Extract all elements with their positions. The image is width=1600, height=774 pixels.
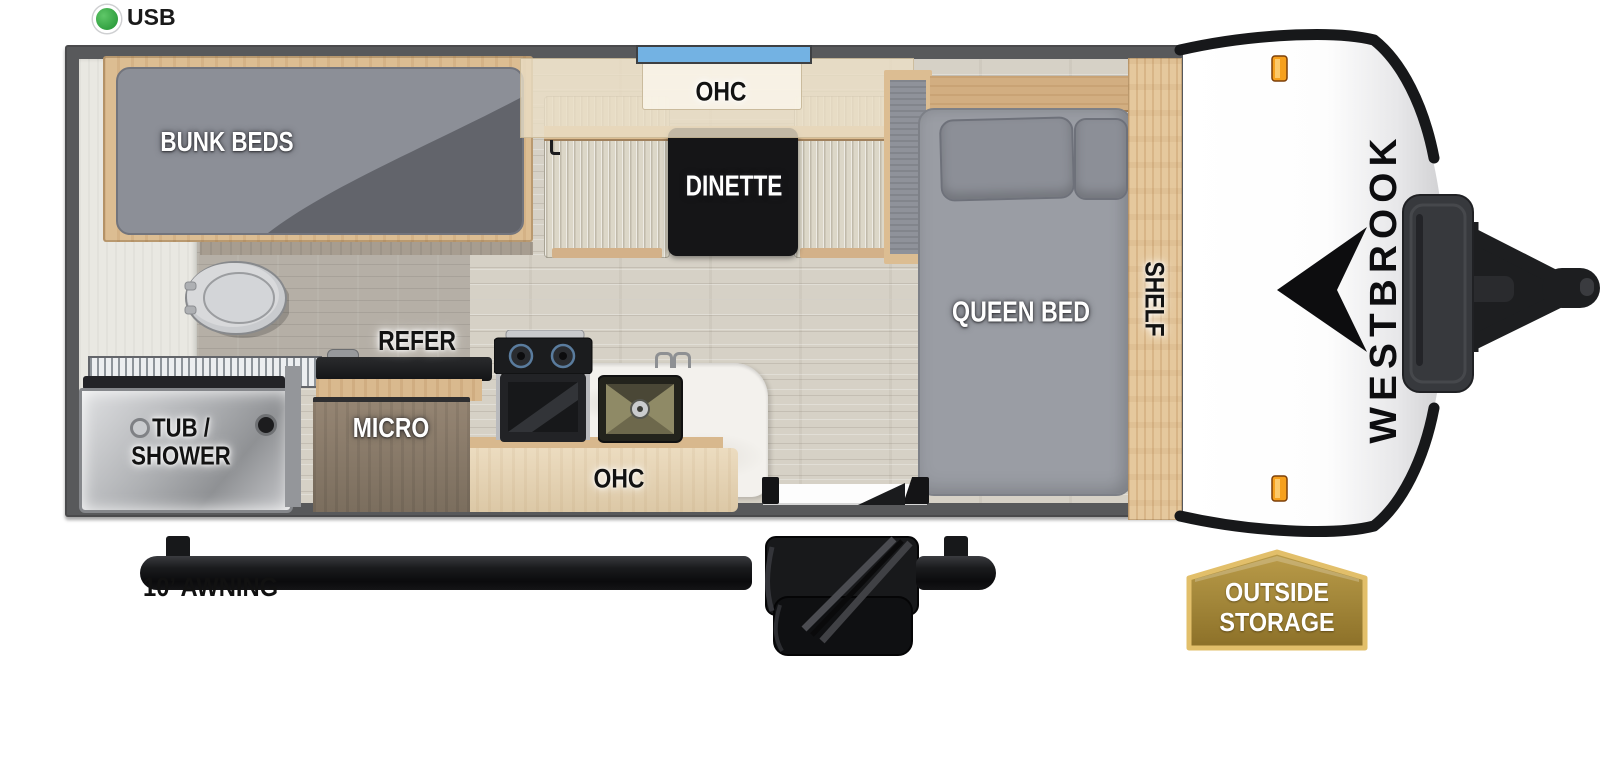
pillow xyxy=(939,116,1075,201)
tub-side-wall xyxy=(285,366,301,507)
badge-line2: STORAGE xyxy=(1219,608,1334,638)
queen-headboard-rail xyxy=(930,76,1128,112)
tub-label-line2: SHOWER xyxy=(131,442,230,470)
queen-bed-label: QUEEN BED xyxy=(952,299,1090,328)
ohc-kitchen-label: OHC xyxy=(594,466,645,493)
propane-cover xyxy=(1403,195,1473,392)
tub-label-line1: TUB / xyxy=(131,414,230,442)
bunk-beds-label: BUNK BEDS xyxy=(160,128,293,156)
seatbelt-hook-icon xyxy=(550,140,560,155)
shelf-label: SHELF xyxy=(1141,261,1168,336)
floorplan-diagram: USB xyxy=(0,0,1600,774)
refrigerator xyxy=(316,357,492,381)
faucet-icon xyxy=(673,352,691,368)
entry-steps xyxy=(752,533,932,663)
pillow xyxy=(1074,118,1128,200)
sink xyxy=(598,372,686,444)
refer-label: REFER xyxy=(378,327,456,355)
toilet xyxy=(183,258,289,342)
bunk-base-trim xyxy=(200,242,533,255)
usb-legend-label: USB xyxy=(127,6,176,29)
dinette-label: DINETTE xyxy=(686,173,783,202)
tub-shower-label: TUB / SHOWER xyxy=(131,414,230,469)
usb-indicator-icon xyxy=(93,5,121,33)
micro-label: MICRO xyxy=(353,414,430,442)
brand-label: WESTBROOK xyxy=(1365,132,1403,443)
window xyxy=(636,45,812,64)
faucet-icon xyxy=(655,352,673,368)
awning-tube xyxy=(916,556,996,590)
tub-control-icon xyxy=(255,414,277,436)
bench-foot xyxy=(552,248,662,258)
awning-label: 10’ AWNING xyxy=(143,574,278,601)
ohc-dinette-label: OHC xyxy=(696,79,747,106)
door-jamb xyxy=(762,477,779,504)
outside-storage-label: OUTSIDE STORAGE xyxy=(1219,578,1334,638)
stove xyxy=(494,330,596,448)
badge-line1: OUTSIDE xyxy=(1219,578,1334,608)
